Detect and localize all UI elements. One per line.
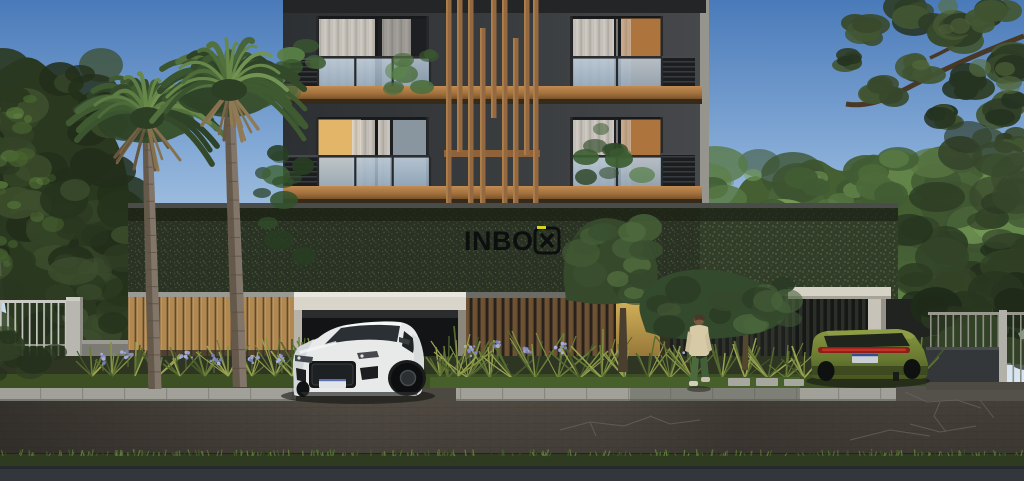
svg-text:INBO: INBO	[464, 226, 534, 256]
